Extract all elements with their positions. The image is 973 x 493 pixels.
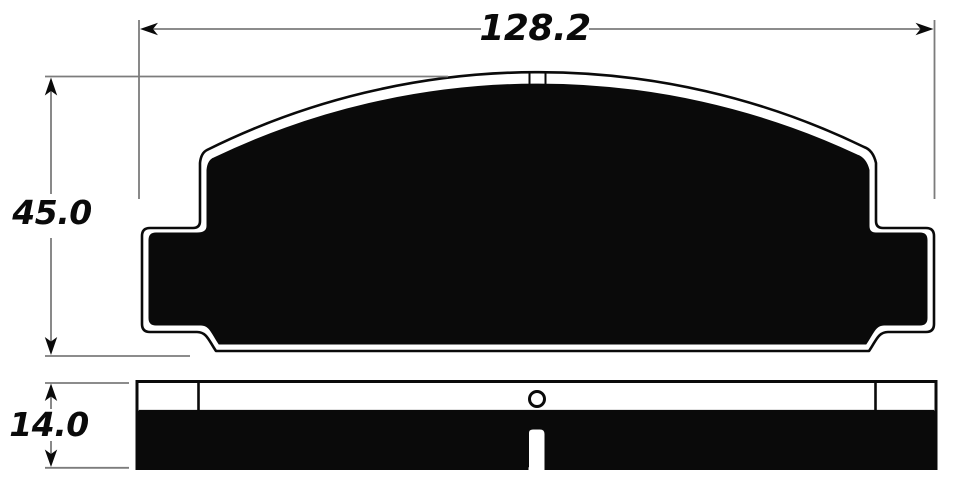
dim-width-label: 128.2 [479, 8, 590, 49]
front-view [142, 71, 934, 351]
dim-height-label: 45.0 [11, 193, 91, 232]
brake-pad-drawing: 128.2 45.0 14.0 [0, 0, 973, 493]
technical-drawing-canvas: 128.2 45.0 14.0 [0, 0, 973, 493]
dim-thickness: 14.0 [9, 383, 129, 468]
side-view [137, 382, 936, 469]
friction-material-band [139, 411, 934, 467]
center-hole [530, 392, 545, 407]
dim-thickness-label: 14.0 [9, 405, 88, 444]
